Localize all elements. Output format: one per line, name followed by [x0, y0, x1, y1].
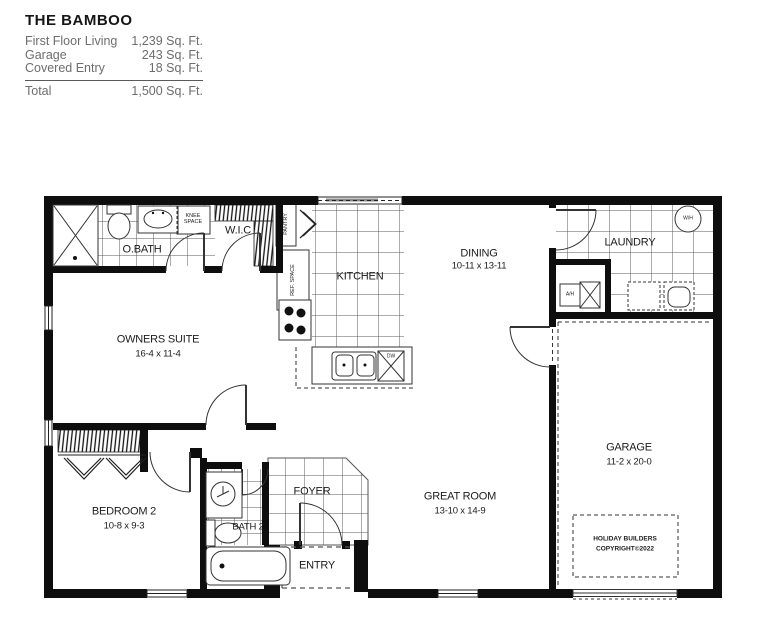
dishwasher-label: DW: [387, 352, 395, 363]
floor-plan-page: THE BAMBOO First Floor Living 1,239 Sq. …: [0, 0, 769, 633]
toilet: [107, 205, 131, 239]
room-dims-great-room: 13-10 x 14-9: [435, 506, 486, 517]
bathroom-sink: [144, 210, 172, 228]
garage-entry-door: [510, 327, 550, 367]
bath2-sink: [206, 472, 242, 518]
room-label-laundry: LAUNDRY: [605, 238, 656, 249]
kitchen-counter: [296, 347, 414, 388]
builder-stamp-line2: COPYRIGHT©2022: [596, 545, 654, 553]
bathtub: [206, 547, 290, 585]
room-label-bath2: BATH 2: [232, 522, 263, 533]
owners-suite-door: [206, 385, 246, 425]
room-label-kitchen: KITCHEN: [337, 272, 384, 283]
room-label-pantry: PANTRY: [283, 213, 289, 235]
wic-shelf-hatch: [215, 205, 273, 221]
foyer-tile: [268, 458, 368, 545]
room-label-foyer: FOYER: [294, 487, 331, 498]
range-cooktop: [279, 300, 311, 340]
room-label-bedroom2: BEDROOM 2: [92, 507, 156, 518]
room-label-knee-space: KNEE SPACE: [184, 213, 202, 225]
room-label-owners-suite: OWNERS SUITE: [117, 335, 200, 346]
room-label-dining: DINING: [460, 249, 497, 260]
room-label-garage: GARAGE: [606, 443, 652, 454]
owners-closet-hatch: [58, 430, 146, 452]
owners-closet-bifold: [64, 458, 146, 479]
room-label-obath: O.BATH: [123, 245, 162, 256]
wic-shelf-hatch: [254, 221, 273, 266]
room-dims-dining: 10-11 x 13-11: [452, 261, 507, 272]
room-dims-owners-suite: 16-4 x 11-4: [135, 349, 180, 360]
room-dims-garage: 11-2 x 20-0: [606, 457, 651, 468]
room-label-wic: W.I.C: [225, 226, 251, 237]
bedroom2-door: [150, 452, 190, 492]
air-handler-label: A/H: [566, 290, 574, 301]
room-label-entry: ENTRY: [299, 561, 335, 572]
water-heater-label: W/H: [683, 214, 693, 225]
builder-stamp-line1: HOLIDAY BUILDERS: [593, 535, 657, 543]
shower: [53, 205, 98, 266]
room-dims-bedroom2: 10-8 x 9-3: [104, 521, 145, 532]
room-label-great-room: GREAT ROOM: [424, 492, 496, 503]
room-label-ref-space: REF. SPACE: [290, 264, 296, 296]
